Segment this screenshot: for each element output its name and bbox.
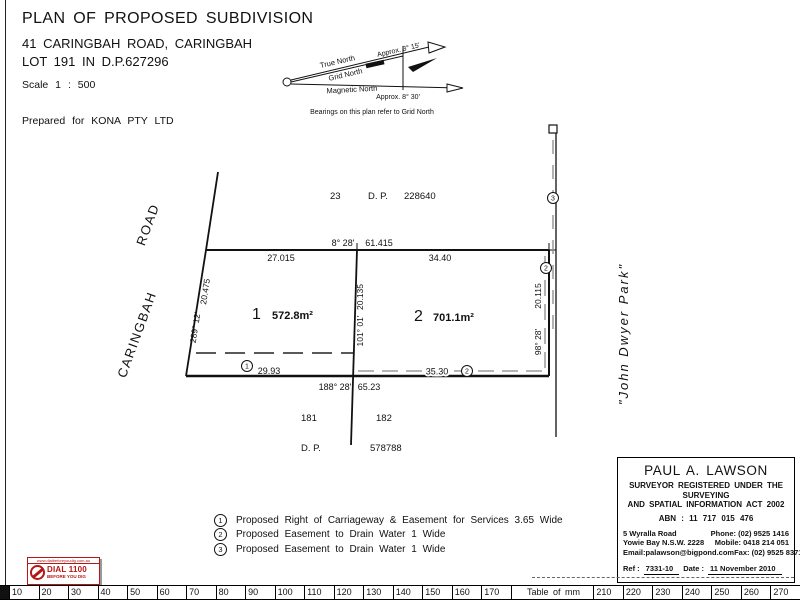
surveyor-fax: Fax: (02) 9525 8371 <box>734 548 800 558</box>
ruler-cell: 240 <box>682 586 712 599</box>
plan-document-page: PLAN OF PROPOSED SUBDIVISION 41 CARINGBA… <box>0 0 800 600</box>
lot2-area: 701.1m² <box>433 312 474 324</box>
date-label: Date : <box>683 564 704 575</box>
surveyor-registration-line1: SURVEYOR REGISTERED UNDER THE SURVEYING <box>623 481 789 500</box>
date-value: 11 November 2010 <box>708 564 781 575</box>
easement2-marker-east: 2 <box>541 263 552 274</box>
ruler-cell: 150 <box>422 586 452 599</box>
ruler-cell: 10 <box>9 586 39 599</box>
adjoining-lot181-number: 181 <box>301 413 317 424</box>
easement3-marker: 3 <box>548 193 559 204</box>
ruler-cell: 250 <box>711 586 741 599</box>
road-boundary-line <box>186 172 218 376</box>
ruler-cell: 50 <box>127 586 157 599</box>
grid-north-label: Grid North <box>328 66 364 83</box>
ruler-cell: 70 <box>186 586 216 599</box>
ruler-cell: 170 <box>481 586 511 599</box>
legend-circle-3: 3 <box>214 543 227 556</box>
surveyor-address-line2: Yowie Bay N.S.W. 2228 <box>623 538 704 548</box>
ruler: 1020304050607080901001101201301401501601… <box>0 585 800 600</box>
adjoining-lot182-number: 182 <box>376 413 392 424</box>
surveyor-name: PAUL A. LAWSON <box>623 463 789 478</box>
ruler-cell: 210 <box>593 586 623 599</box>
svg-text:2: 2 <box>465 369 469 376</box>
east-bearing-label: 98° 28' <box>533 328 543 355</box>
surveyor-abn: ABN : 11 717 015 476 <box>623 514 789 523</box>
ruler-cell: 110 <box>304 586 334 599</box>
bottom-bearing-label: 188° 28' <box>319 382 352 392</box>
easement-legend: 1 Proposed Right of Carriageway & Easeme… <box>214 513 563 557</box>
surveyor-info-box: PAUL A. LAWSON SURVEYOR REGISTERED UNDER… <box>617 457 795 583</box>
ruler-cell: 40 <box>98 586 128 599</box>
true-north-arrow <box>428 42 445 53</box>
surveyor-address-line1: 5 Wyralla Road <box>623 529 677 539</box>
top-bearing-label: 8° 28' <box>332 238 355 248</box>
adjoining-lot23-dp: D. P. <box>368 191 388 202</box>
surveyor-registration-line2: AND SPATIAL INFORMATION ACT 2002 <box>623 500 789 510</box>
surveyor-phone: Phone: (02) 9525 1416 <box>711 529 789 539</box>
surveyor-contact-details: 5 Wyralla Road Phone: (02) 9525 1416 Yow… <box>623 529 789 558</box>
legend-item-1: 1 Proposed Right of Carriageway & Easeme… <box>214 513 563 528</box>
top-distance-label: 61.415 <box>365 238 393 248</box>
easement2-marker-south: 2 <box>462 366 473 377</box>
top-segment2-label: 34.40 <box>429 253 452 263</box>
ruler-cell: 130 <box>363 586 393 599</box>
svg-text:3: 3 <box>551 196 555 203</box>
easement1-marker: 1 <box>242 361 253 372</box>
solid-north-arrow <box>408 58 437 72</box>
top-segment1-label: 27.015 <box>267 253 295 263</box>
ruler-cell: 100 <box>275 586 305 599</box>
reference-row: Ref : 7331-10 Date : 11 November 2010 <box>623 564 789 575</box>
magnetic-north-label: Magnetic North <box>326 84 377 96</box>
dial-before-you-dig-logo: www.dialbeforeyoudig.com.au DIAL 1100 BE… <box>27 557 100 585</box>
svg-text:1: 1 <box>245 364 249 371</box>
legend-text-3: Proposed Easement to Drain Water 1 Wide <box>236 544 445 555</box>
ruler-cell: 60 <box>157 586 187 599</box>
legend-item-2: 2 Proposed Easement to Drain Water 1 Wid… <box>214 528 563 543</box>
mid-distance-label: 20.135 <box>355 284 365 310</box>
dig-logo-line1: DIAL 1100 <box>47 566 87 574</box>
park-boundary-end-square <box>549 125 557 133</box>
lot1-area: 572.8m² <box>272 310 313 322</box>
magnetic-north-arrow <box>447 84 463 92</box>
grid-north-hatch <box>366 62 384 66</box>
ruler-cell: 80 <box>216 586 246 599</box>
north-origin-circle <box>283 78 291 86</box>
boundary-lines <box>186 125 557 445</box>
bottom-distance-label: 65.23 <box>358 382 381 392</box>
north-arrow-diagram: True North Grid North Approx. 3° 15' Mag… <box>283 41 463 116</box>
easement-markers: 1 2 2 3 <box>242 193 559 377</box>
legend-text-2: Proposed Easement to Drain Water 1 Wide <box>236 529 445 540</box>
west-bearing-label: 289° 12' <box>188 311 203 344</box>
adjoining-bottom-dp: D. P. <box>301 443 321 454</box>
ruler-cell: 220 <box>623 586 653 599</box>
ruler-cell: 30 <box>68 586 98 599</box>
easement-lines <box>196 140 553 371</box>
ruler-cell: 140 <box>393 586 423 599</box>
svg-text:2: 2 <box>544 266 548 273</box>
ruler-cell: 230 <box>652 586 682 599</box>
adjoining-bottom-dp-number: 578788 <box>370 443 402 454</box>
ref-label: Ref : <box>623 564 640 575</box>
lot1-number: 1 <box>252 306 261 323</box>
true-north-label: True North <box>319 53 356 70</box>
ruler-table-of-mm-cell: Table of mm <box>511 586 594 599</box>
east-distance-label: 20.115 <box>533 283 543 309</box>
surveyor-email: Email:palawson@bigpond.com <box>623 548 734 558</box>
lot2-number: 2 <box>414 308 423 325</box>
adjoining-lot23-dp-number: 228640 <box>404 191 436 202</box>
legend-text-1: Proposed Right of Carriageway & Easement… <box>236 515 563 526</box>
easement1-distance-label: 29.93 <box>258 366 281 376</box>
legend-item-3: 3 Proposed Easement to Drain Water 1 Wid… <box>214 542 563 557</box>
ruler-cell: 120 <box>334 586 364 599</box>
surveyor-mobile: Mobile: 0418 214 051 <box>715 538 789 548</box>
legend-circle-1: 1 <box>214 514 227 527</box>
ruler-cell: 160 <box>452 586 482 599</box>
ruler-start-block <box>0 586 9 599</box>
north-caption: Bearings on this plan refer to Grid Nort… <box>310 109 434 116</box>
fold-dashed-line <box>532 577 794 578</box>
easement2-distance-label: 35.30 <box>426 367 449 377</box>
adjoining-lot23-number: 23 <box>330 191 341 202</box>
ruler-cell: 260 <box>741 586 771 599</box>
no-dig-icon <box>30 565 45 580</box>
park-name-label: "John Dwyer Park" <box>616 263 631 405</box>
ruler-cell: 270 <box>770 586 800 599</box>
dig-logo-line2: BEFORE YOU DIG <box>47 575 87 580</box>
mid-bearing-label: 101° 01' <box>355 315 365 346</box>
approx-angle-top-label: Approx. 3° 15' <box>376 41 421 59</box>
ruler-cell: 90 <box>245 586 275 599</box>
road-name-road: ROAD <box>133 201 162 247</box>
ruler-cell: 20 <box>39 586 69 599</box>
ref-value: 7331-10 <box>644 564 680 575</box>
approx-angle-bottom-label: Approx. 8° 30' <box>376 93 420 101</box>
legend-circle-2: 2 <box>214 528 227 541</box>
road-name-caringbah: CARINGBAH <box>114 289 159 379</box>
